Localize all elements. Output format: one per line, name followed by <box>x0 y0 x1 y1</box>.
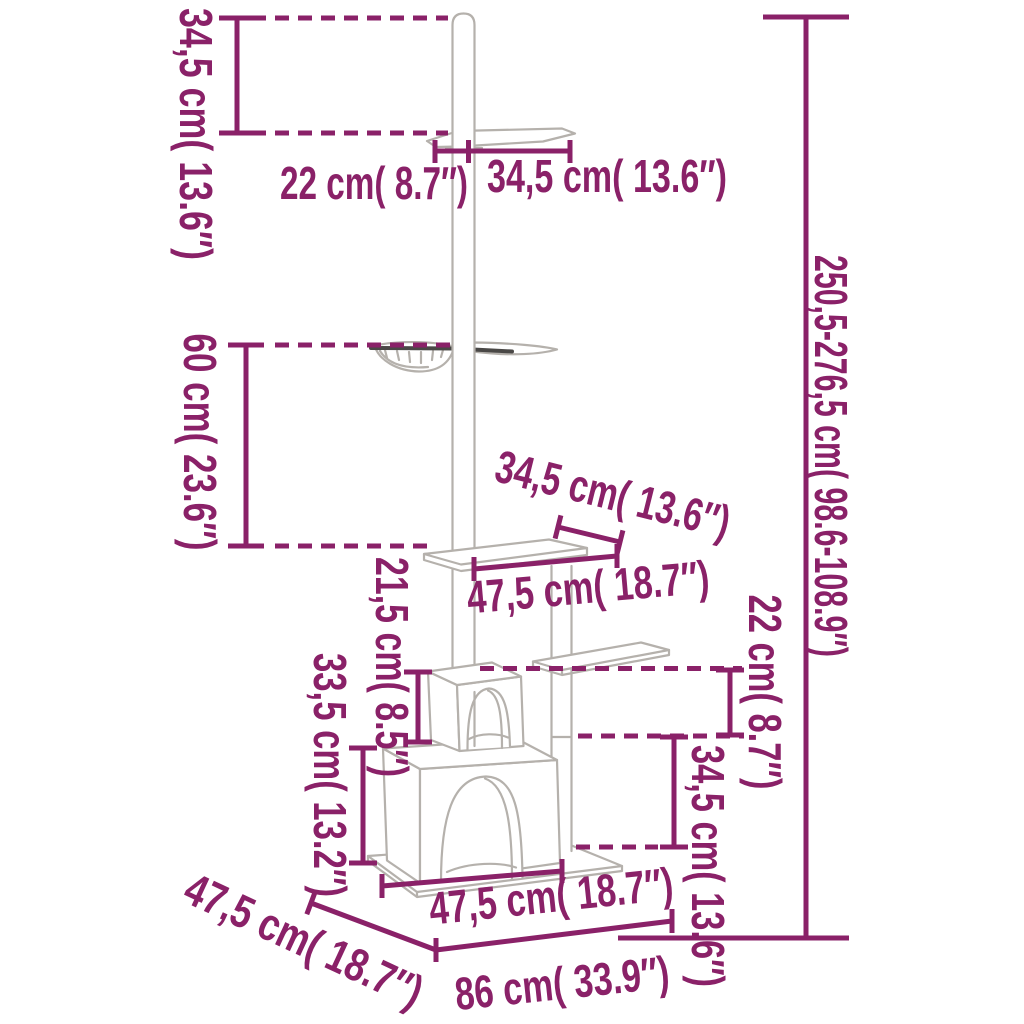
dimension-diagram-svg: 34,5 cm( 13.6″) 22 cm( 8.7″) 34,5 cm( 13… <box>0 0 1024 1024</box>
dimension-label-top-platform-right-width: 34,5 cm( 13.6″) <box>487 150 727 202</box>
dimension-label-hammock-drop-height: 60 cm( 23.6″) <box>174 334 226 551</box>
dimension-label-side-platform-drop: 22 cm( 8.7″) <box>739 595 791 790</box>
dimension-label-top-platform-left-width: 22 cm( 8.7″) <box>280 157 468 209</box>
dimension-label-side-platform-height: 34,5 cm( 13.6″) <box>682 745 734 987</box>
dimension-label-total-height-range: 250,5-276,5 cm( 98.6-108.9″) <box>805 255 857 657</box>
dimension-label-upper-house-height: 21,5 cm( 8.5″) <box>366 557 418 777</box>
dimension-label-lower-house-height: 33,5 cm( 13.2″) <box>304 653 356 897</box>
dimension-label-upper-section-height: 34,5 cm( 13.6″) <box>170 8 222 260</box>
dimension-diagram: 34,5 cm( 13.6″) 22 cm( 8.7″) 34,5 cm( 13… <box>0 0 1024 1024</box>
